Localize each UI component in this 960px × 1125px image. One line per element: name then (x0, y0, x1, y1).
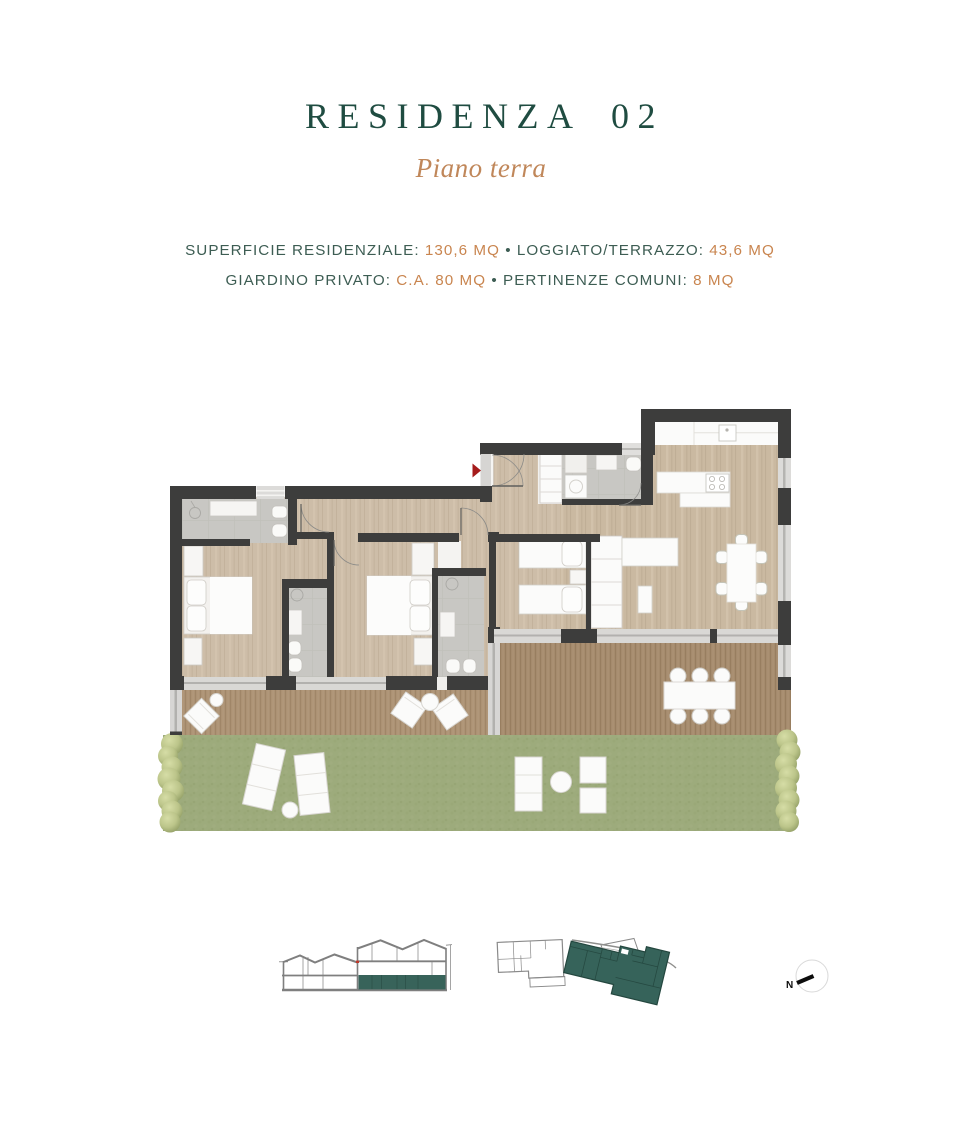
svg-text:N: N (786, 980, 793, 991)
